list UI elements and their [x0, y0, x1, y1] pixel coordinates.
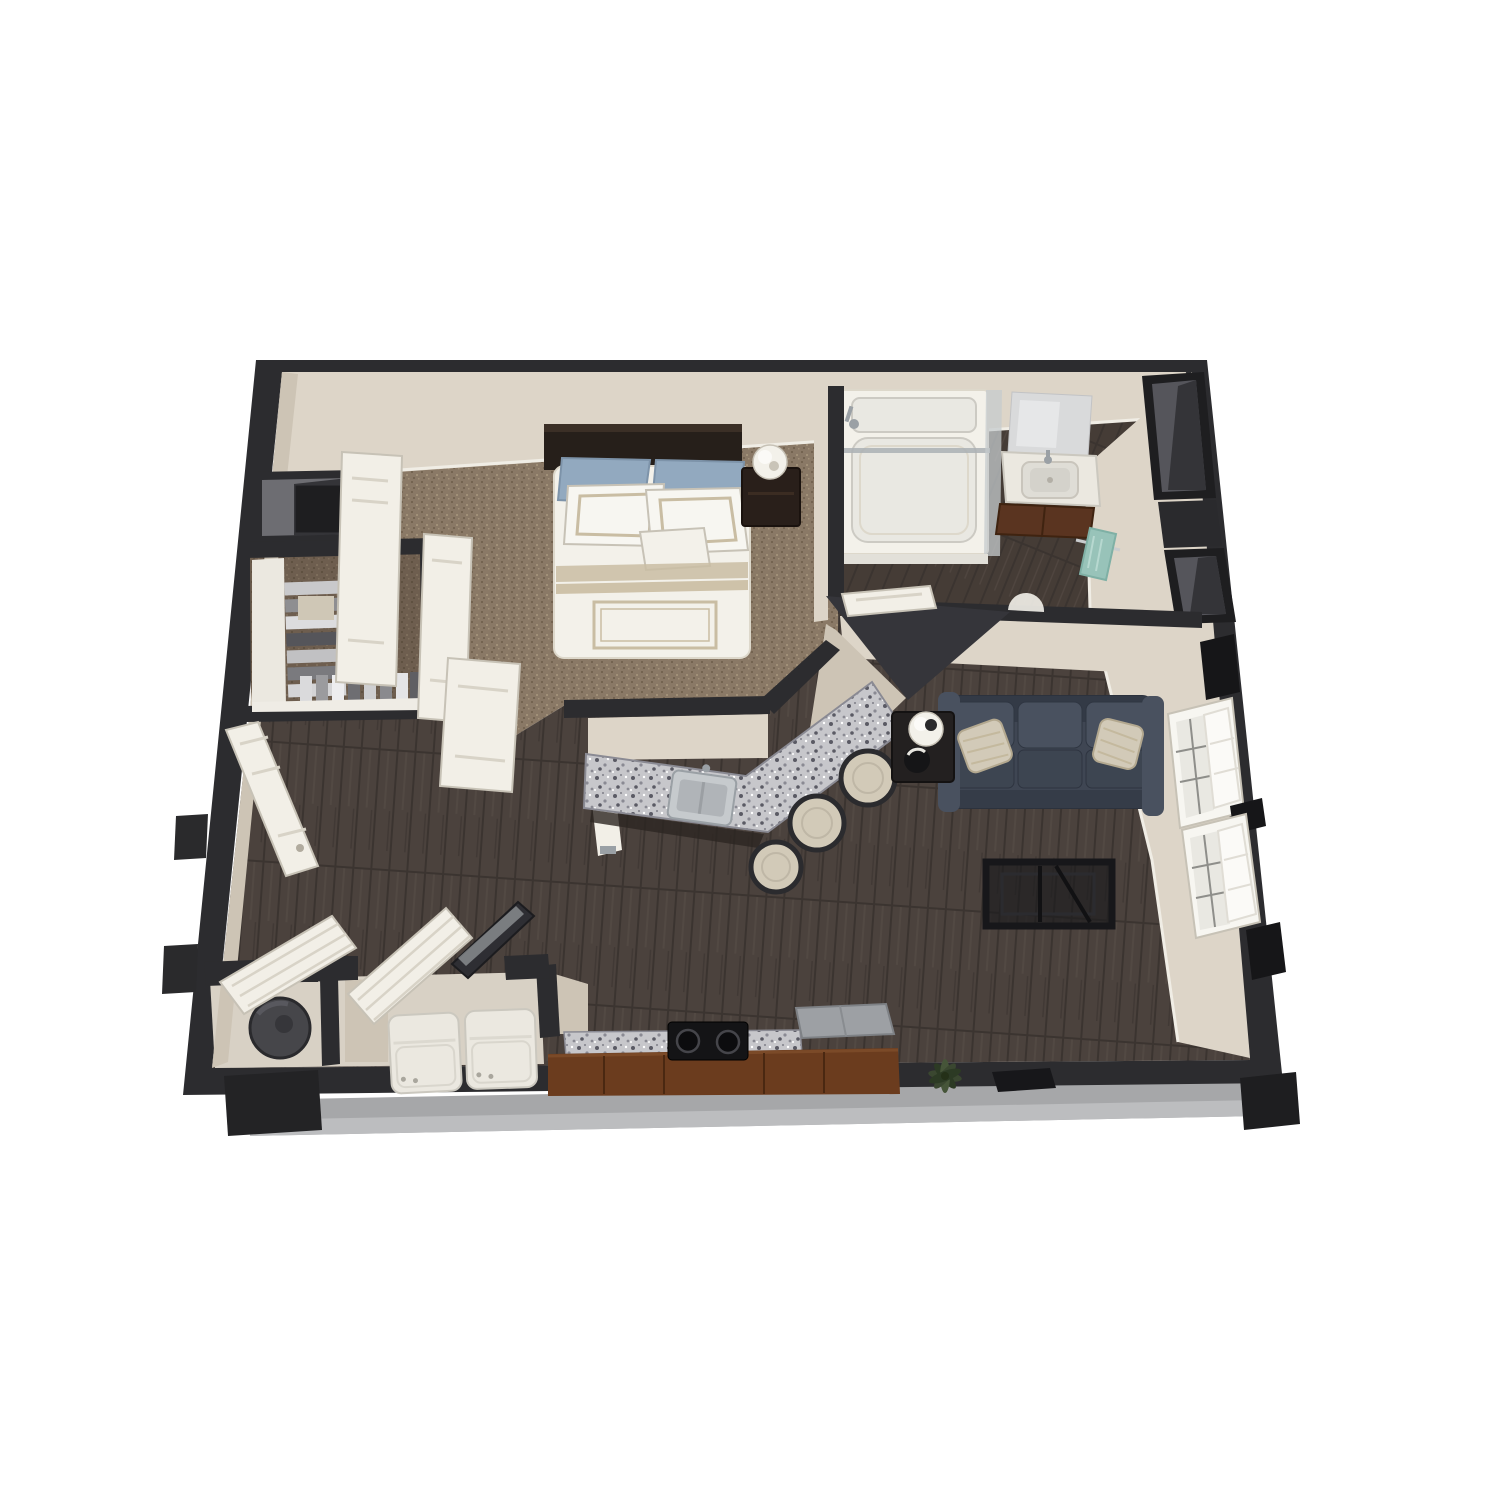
closet-shelf-left: [252, 558, 286, 710]
tv-slab: [992, 1068, 1056, 1092]
floor-plan-render: [0, 0, 1500, 1500]
laundry-north-wall: [504, 954, 550, 980]
burner: [677, 1030, 699, 1052]
entry-stoop: [224, 1070, 322, 1136]
door-knob: [296, 844, 304, 852]
bath-west-wall: [828, 386, 844, 598]
laundry-partition: [320, 977, 340, 1066]
shower-glass: [840, 448, 990, 453]
dryer: [465, 1009, 538, 1089]
window-cap: [1200, 634, 1240, 700]
washer: [388, 1012, 462, 1094]
table-lamp: [753, 445, 787, 479]
niche-box: [296, 486, 342, 532]
sofa: [938, 692, 1164, 816]
counter-foot: [600, 846, 616, 854]
bed: [544, 424, 750, 658]
side-table: [892, 712, 954, 782]
folded-sweaters: [298, 596, 334, 620]
throw-pillow: [1091, 717, 1144, 770]
tub-curb: [840, 554, 988, 564]
window-cap: [1246, 922, 1286, 980]
floor-plan-page: [0, 0, 1500, 1500]
window: [1182, 814, 1260, 938]
coffee-table: [986, 862, 1112, 926]
decor-bowl: [904, 747, 930, 773]
shower-head: [849, 419, 859, 429]
corner-foot: [1240, 1072, 1300, 1130]
burner: [717, 1031, 739, 1053]
halfwall-face: [588, 714, 768, 760]
sofa-arm: [1142, 696, 1164, 816]
sofa-lamp: [909, 712, 943, 746]
